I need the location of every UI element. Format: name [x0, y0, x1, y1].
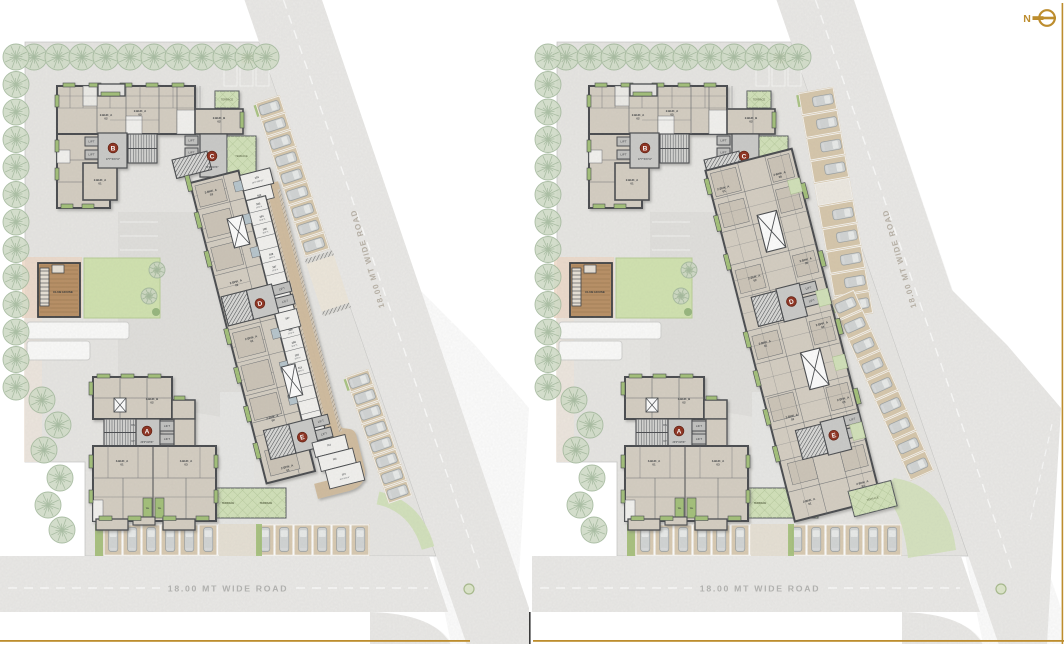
svg-text:N: N	[1023, 13, 1031, 25]
